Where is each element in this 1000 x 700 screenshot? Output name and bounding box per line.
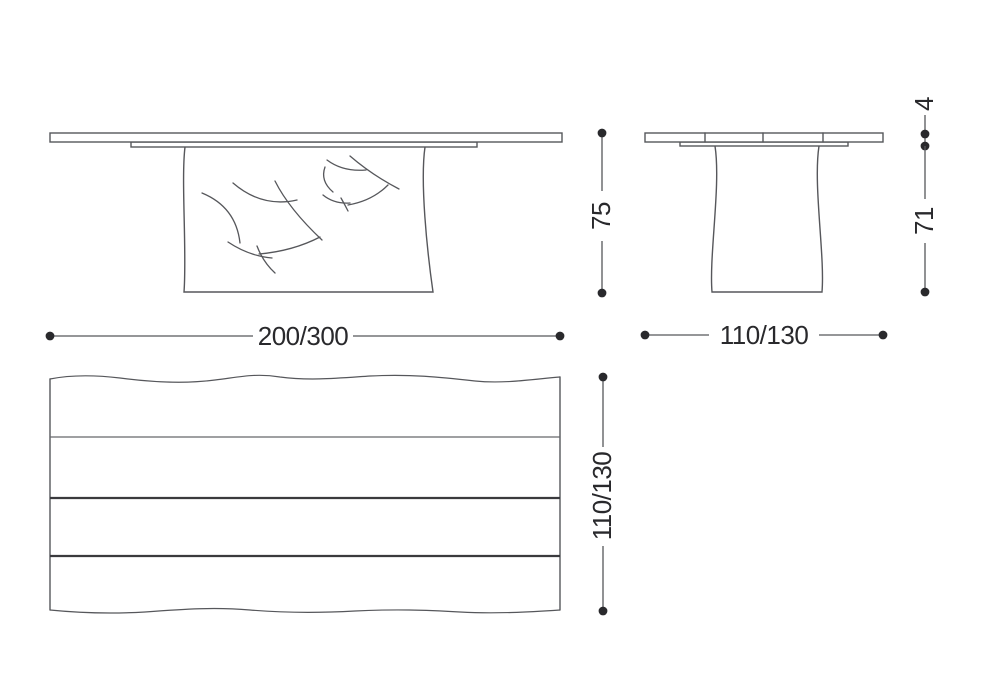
dimension-endpoint-dot [46,332,55,341]
top-plan-view [50,375,560,613]
dimension-endpoint-dot [921,288,930,297]
engraving-arc [350,156,399,189]
dimension-top-thickness: 4 [909,97,939,150]
dimension-label-overall-height: 75 [586,202,616,230]
dimension-endpoint-dot [598,129,607,138]
side-pedestal-outline [712,146,823,292]
front-pedestal-outline [184,147,433,292]
dimension-endpoint-dot [599,607,608,616]
engraving-arc [327,160,366,170]
dimension-side-depth: 110/130 [641,320,888,350]
pedestal-engraving-small-motif [323,156,399,211]
front-elevation-view [50,133,562,292]
side-elevation-view [645,133,883,292]
engraving-arc [202,193,240,243]
engraving-arc [275,181,322,240]
engraving-arc [233,183,297,202]
engraving-arc [323,195,350,203]
engraving-arc [348,185,388,205]
engraving-arc [324,167,333,192]
dimension-label-top-thickness: 4 [909,97,939,111]
dimension-label-base-height: 71 [909,207,939,235]
dimension-front-width: 200/300 [46,321,565,351]
engraving-arc [341,198,348,211]
dimension-endpoint-dot [921,130,930,139]
plan-top-live-edge [50,375,560,382]
dimension-label-plan-depth: 110/130 [587,452,617,541]
side-tabletop [645,133,883,142]
pedestal-engraving-large-motif [202,181,322,273]
dimension-plan-depth: 110/130 [587,373,617,616]
engraving-arc [228,242,272,258]
technical-drawing-canvas: 200/300 110/130 75 4 [0,0,1000,700]
dimension-endpoint-dot [599,373,608,382]
dimension-endpoint-dot [598,289,607,298]
engraving-arc [259,237,320,254]
dimension-overall-height: 75 [586,129,616,298]
dimension-label-side-depth: 110/130 [720,320,809,350]
dimension-endpoint-dot [556,332,565,341]
front-tabletop [50,133,562,142]
dimension-endpoint-dot [879,331,888,340]
plan-bottom-live-edge [50,609,560,614]
engraving-arc [257,246,275,273]
dimension-base-height: 71 [909,146,939,296]
dimension-endpoint-dot [641,331,650,340]
dimension-label-front-width: 200/300 [258,321,349,351]
drawing-svg: 200/300 110/130 75 4 [0,0,1000,700]
front-underframe-rail [131,142,477,147]
